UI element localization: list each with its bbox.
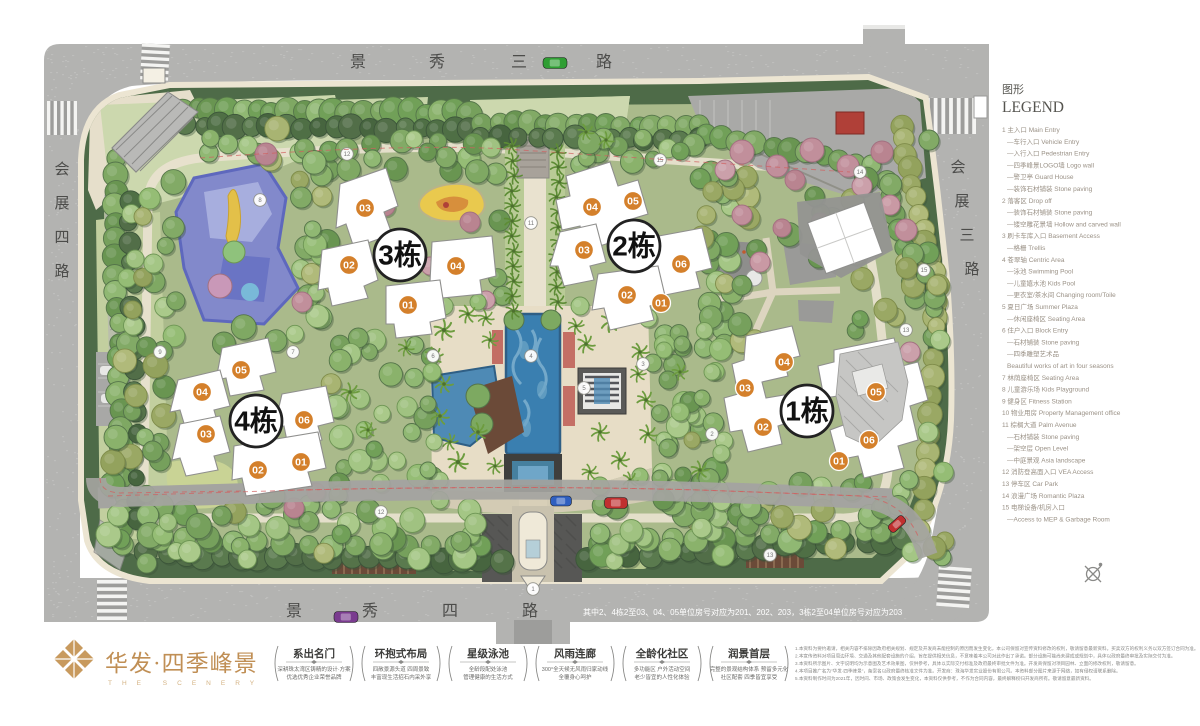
svg-text:—镂空雕花景墙 Hollow and carved wall: —镂空雕花景墙 Hollow and carved wall — [1007, 219, 1121, 228]
svg-text:环抱式布局: 环抱式布局 — [375, 647, 428, 660]
svg-text:13: 13 — [903, 328, 910, 334]
svg-text:四: 四 — [54, 229, 69, 246]
svg-text:丰富现生活招石内采外享: 丰富现生活招石内采外享 — [371, 673, 432, 681]
svg-text:—装饰石材铺装 Stone paving: —装饰石材铺装 Stone paving — [1007, 184, 1093, 193]
svg-text:3.本资料所示图片、文字说明均为示意图及艺术效果图，仅供参考: 3.本资料所示图片、文字说明均为示意图及艺术效果图，仅供参考，具体以实际交付标准… — [795, 660, 1139, 667]
svg-text:01: 01 — [655, 298, 667, 310]
svg-text:12: 12 — [344, 152, 351, 158]
svg-text:—警卫亭 Guard House: —警卫亭 Guard House — [1007, 172, 1074, 181]
svg-text:路: 路 — [522, 602, 538, 620]
svg-text:三: 三 — [959, 227, 974, 244]
svg-text:8 儿童游乐场 Kids Playground: 8 儿童游乐场 Kids Playground — [1002, 385, 1089, 394]
svg-text:三: 三 — [511, 54, 527, 71]
svg-text:—石材铺装 Stone paving: —石材铺装 Stone paving — [1007, 432, 1080, 441]
svg-text:全覆身心呵护: 全覆身心呵护 — [558, 673, 592, 681]
svg-text:04: 04 — [196, 387, 208, 399]
svg-text:1栋: 1栋 — [785, 395, 829, 427]
svg-text:THE SCENERY: THE SCENERY — [108, 680, 264, 687]
svg-text:15: 15 — [921, 268, 928, 274]
svg-text:04: 04 — [450, 261, 462, 273]
svg-text:展: 展 — [54, 195, 69, 212]
svg-text:Beautiful works of art in four: Beautiful works of art in four seasons — [1007, 363, 1114, 370]
svg-text:—儿童嬉水池 Kids Pool: —儿童嬉水池 Kids Pool — [1007, 278, 1076, 287]
svg-text:06: 06 — [675, 259, 687, 271]
svg-text:14: 14 — [857, 170, 864, 176]
svg-text:—休闲座椅区 Seating Area: —休闲座椅区 Seating Area — [1007, 314, 1085, 323]
svg-text:12 消防登高面入口 VEA Access: 12 消防登高面入口 VEA Access — [1002, 467, 1094, 476]
svg-text:04: 04 — [778, 357, 790, 369]
svg-text:15 电梯设备/机房入口: 15 电梯设备/机房入口 — [1002, 503, 1065, 512]
svg-text:多功能区 户外活动空间: 多功能区 户外活动空间 — [634, 665, 691, 673]
svg-text:01: 01 — [833, 456, 845, 468]
svg-text:景: 景 — [350, 54, 366, 71]
svg-text:展: 展 — [954, 193, 969, 210]
svg-text:01: 01 — [295, 457, 307, 469]
svg-text:02: 02 — [621, 290, 633, 302]
svg-text:—更衣室/茶水间 Changing room/Toile: —更衣室/茶水间 Changing room/Toile — [1007, 290, 1116, 299]
svg-text:会: 会 — [950, 159, 965, 176]
svg-text:05: 05 — [627, 196, 639, 208]
svg-text:—石材铺装 Stone paving: —石材铺装 Stone paving — [1007, 337, 1080, 346]
svg-text:润景首层: 润景首层 — [728, 647, 770, 660]
svg-text:13 停车区 Car Park: 13 停车区 Car Park — [1002, 479, 1059, 488]
svg-text:06: 06 — [863, 435, 875, 447]
svg-text:路: 路 — [964, 261, 979, 278]
svg-text:图形: 图形 — [1002, 83, 1024, 96]
svg-text:14 浪漫广场 Romantic Plaza: 14 浪漫广场 Romantic Plaza — [1002, 491, 1085, 500]
svg-text:—入行入口 Pedestrian Entry: —入行入口 Pedestrian Entry — [1007, 149, 1090, 158]
svg-text:2.本宣传资料对项目周边环境、交通及其他配套设施的介绍，旨在: 2.本宣传资料对项目周边环境、交通及其他配套设施的介绍，旨在提供相关信息，不意味… — [795, 653, 1176, 660]
svg-text:—格栅 Trellis: —格栅 Trellis — [1007, 243, 1046, 252]
svg-text:3 刷卡车库入口 Basement Access: 3 刷卡车库入口 Basement Access — [1002, 231, 1101, 240]
svg-text:—车行入口 Vehicle Entry: —车行入口 Vehicle Entry — [1007, 137, 1080, 146]
svg-text:01: 01 — [402, 300, 414, 312]
svg-text:03: 03 — [359, 203, 371, 215]
svg-text:02: 02 — [757, 422, 769, 434]
svg-text:老少皆宜的人性化体验: 老少皆宜的人性化体验 — [634, 673, 690, 681]
svg-text:10 物业用房 Property Management of: 10 物业用房 Property Management office — [1002, 408, 1121, 417]
svg-text:6 住户入口 Block Entry: 6 住户入口 Block Entry — [1002, 326, 1069, 335]
svg-text:四敞景源头道 四周景致: 四敞景源头道 四周景致 — [373, 665, 430, 673]
svg-text:1.本资料为要约邀请，相关内容不排除因政府相关规划、规定及开: 1.本资料为要约邀请，相关内容不排除因政府相关规划、规定及开发商未能控制的原因而… — [795, 645, 1199, 652]
svg-text:—中庭景观 Asia landscape: —中庭景观 Asia landscape — [1007, 455, 1086, 464]
svg-text:04: 04 — [586, 202, 598, 214]
svg-text:12: 12 — [378, 510, 385, 516]
svg-text:全龄段配处泳池: 全龄段配处泳池 — [469, 665, 508, 673]
svg-text:05: 05 — [870, 387, 882, 399]
svg-text:系出名门: 系出名门 — [293, 647, 335, 660]
svg-text:03: 03 — [200, 429, 212, 441]
svg-text:—架空层 Open Level: —架空层 Open Level — [1007, 444, 1069, 453]
svg-text:4 苍翠轴 Centric Area: 4 苍翠轴 Centric Area — [1002, 255, 1065, 264]
svg-text:03: 03 — [739, 383, 751, 395]
svg-text:02: 02 — [252, 465, 264, 477]
svg-text:—泳池 Swimming Pool: —泳池 Swimming Pool — [1007, 267, 1074, 276]
svg-text:11: 11 — [528, 221, 535, 227]
svg-text:06: 06 — [298, 415, 310, 427]
svg-text:2栋: 2栋 — [612, 230, 656, 262]
svg-text:13: 13 — [767, 553, 774, 559]
svg-text:四: 四 — [442, 603, 458, 620]
svg-text:11 棕榈大道 Palm Avenue: 11 棕榈大道 Palm Avenue — [1002, 420, 1077, 429]
svg-text:9 健身区 Fitness Station: 9 健身区 Fitness Station — [1002, 396, 1072, 405]
svg-text:风雨连廊: 风雨连廊 — [554, 647, 596, 660]
svg-text:社区配套 四季皆宜享受: 社区配套 四季皆宜享受 — [721, 673, 778, 681]
svg-text:星级泳池: 星级泳池 — [467, 647, 509, 660]
svg-text:路: 路 — [54, 263, 69, 280]
svg-text:秀: 秀 — [362, 602, 378, 620]
svg-text:05: 05 — [235, 365, 247, 377]
svg-text:深耕珠太湾区铸精的设计·方案: 深耕珠太湾区铸精的设计·方案 — [277, 665, 351, 673]
svg-text:02: 02 — [343, 260, 355, 272]
svg-text:LEGEND: LEGEND — [1002, 99, 1064, 116]
svg-text:优选优秀企业荣誉品牌: 优选优秀企业荣誉品牌 — [286, 673, 342, 681]
svg-text:会: 会 — [54, 161, 69, 178]
svg-text:300°全天候无风雨归家动线: 300°全天候无风雨归家动线 — [542, 665, 609, 673]
svg-text:5 夏日广场 Summer Plaza: 5 夏日广场 Summer Plaza — [1002, 302, 1078, 311]
svg-text:路: 路 — [596, 53, 612, 71]
svg-text:其中2、4栋2至03、04、05单位房号对应为201、202: 其中2、4栋2至03、04、05单位房号对应为201、202、203，3栋2至0… — [583, 607, 903, 617]
svg-text:管理健康的生活方式: 管理健康的生活方式 — [463, 673, 513, 681]
svg-text:—四季峰景LOGO墙 Logo wall: —四季峰景LOGO墙 Logo wall — [1007, 160, 1095, 169]
svg-text:2 落客区 Drop off: 2 落客区 Drop off — [1002, 196, 1052, 205]
svg-text:—装饰石材铺装 Stone paving: —装饰石材铺装 Stone paving — [1007, 208, 1093, 217]
svg-text:4栋: 4栋 — [234, 405, 278, 437]
svg-text:秀: 秀 — [429, 53, 445, 71]
svg-text:—四季雕塑艺术品: —四季雕塑艺术品 — [1007, 349, 1059, 358]
svg-text:1 主入口 Main Entry: 1 主入口 Main Entry — [1002, 125, 1061, 134]
svg-text:全龄化社区: 全龄化社区 — [635, 647, 689, 660]
svg-text:5.本资料制作时间为2021年，因时间、市场、政策会发生变化: 5.本资料制作时间为2021年，因时间、市场、政策会发生变化，本资料仅供参考，不… — [795, 675, 1094, 682]
svg-text:景: 景 — [286, 603, 302, 620]
svg-text:—Access to MEP & Garbage Room: —Access to MEP & Garbage Room — [1007, 516, 1110, 523]
svg-text:3栋: 3栋 — [378, 239, 422, 271]
svg-text:03: 03 — [578, 245, 590, 257]
svg-text:华发·四季峰景: 华发·四季峰景 — [105, 651, 258, 676]
svg-text:完整的景观结构体系 预留多元化: 完整的景观结构体系 预留多元化 — [710, 665, 789, 673]
svg-text:4.本项目推广名为"华发·四季峰景"，备案名以政府最终核准文: 4.本项目推广名为"华发·四季峰景"，备案名以政府最终核准文件为准。开发商：珠海… — [795, 668, 1121, 675]
svg-text:7 林荫座椅区 Seating Area: 7 林荫座椅区 Seating Area — [1002, 373, 1079, 382]
